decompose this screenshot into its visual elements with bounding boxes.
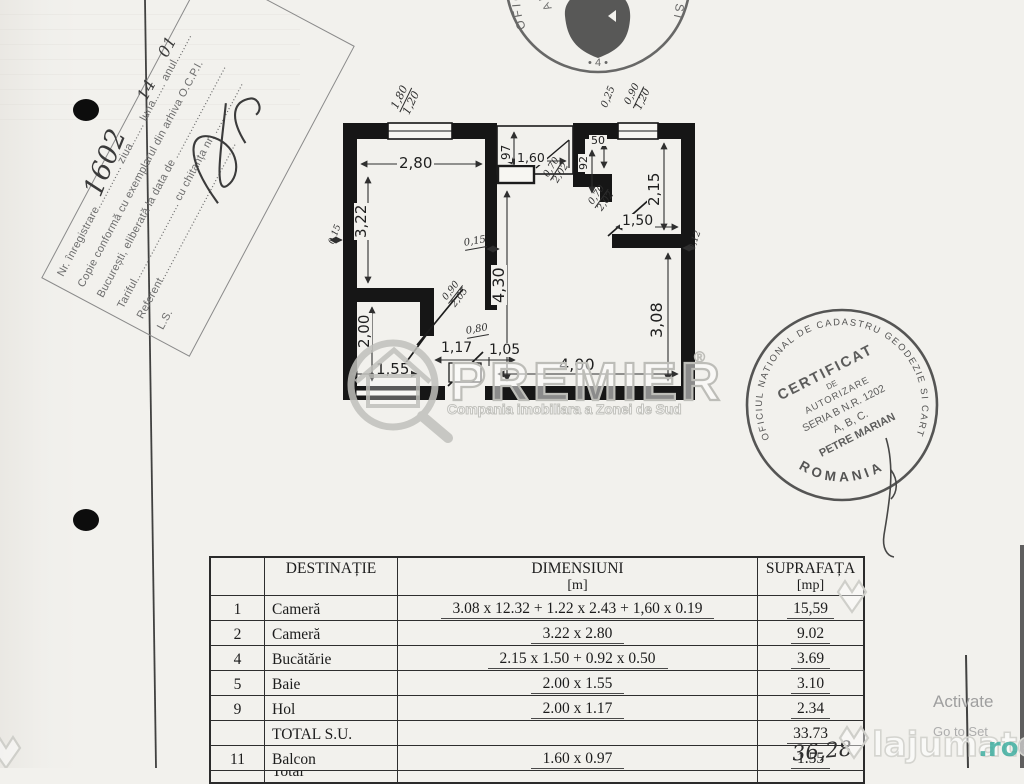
lajumate-watermark: lajumate .ro bbox=[0, 0, 1024, 768]
table-row-partial: Total bbox=[211, 771, 863, 782]
os-activate-subtext: Go to Set bbox=[933, 724, 988, 739]
heart-icon bbox=[0, 581, 868, 768]
scanned-cadastral-document: { "reg_stamp": { "l1": "Nr. înregistrare… bbox=[0, 0, 1024, 768]
os-activate-text: Activate bbox=[933, 692, 993, 712]
